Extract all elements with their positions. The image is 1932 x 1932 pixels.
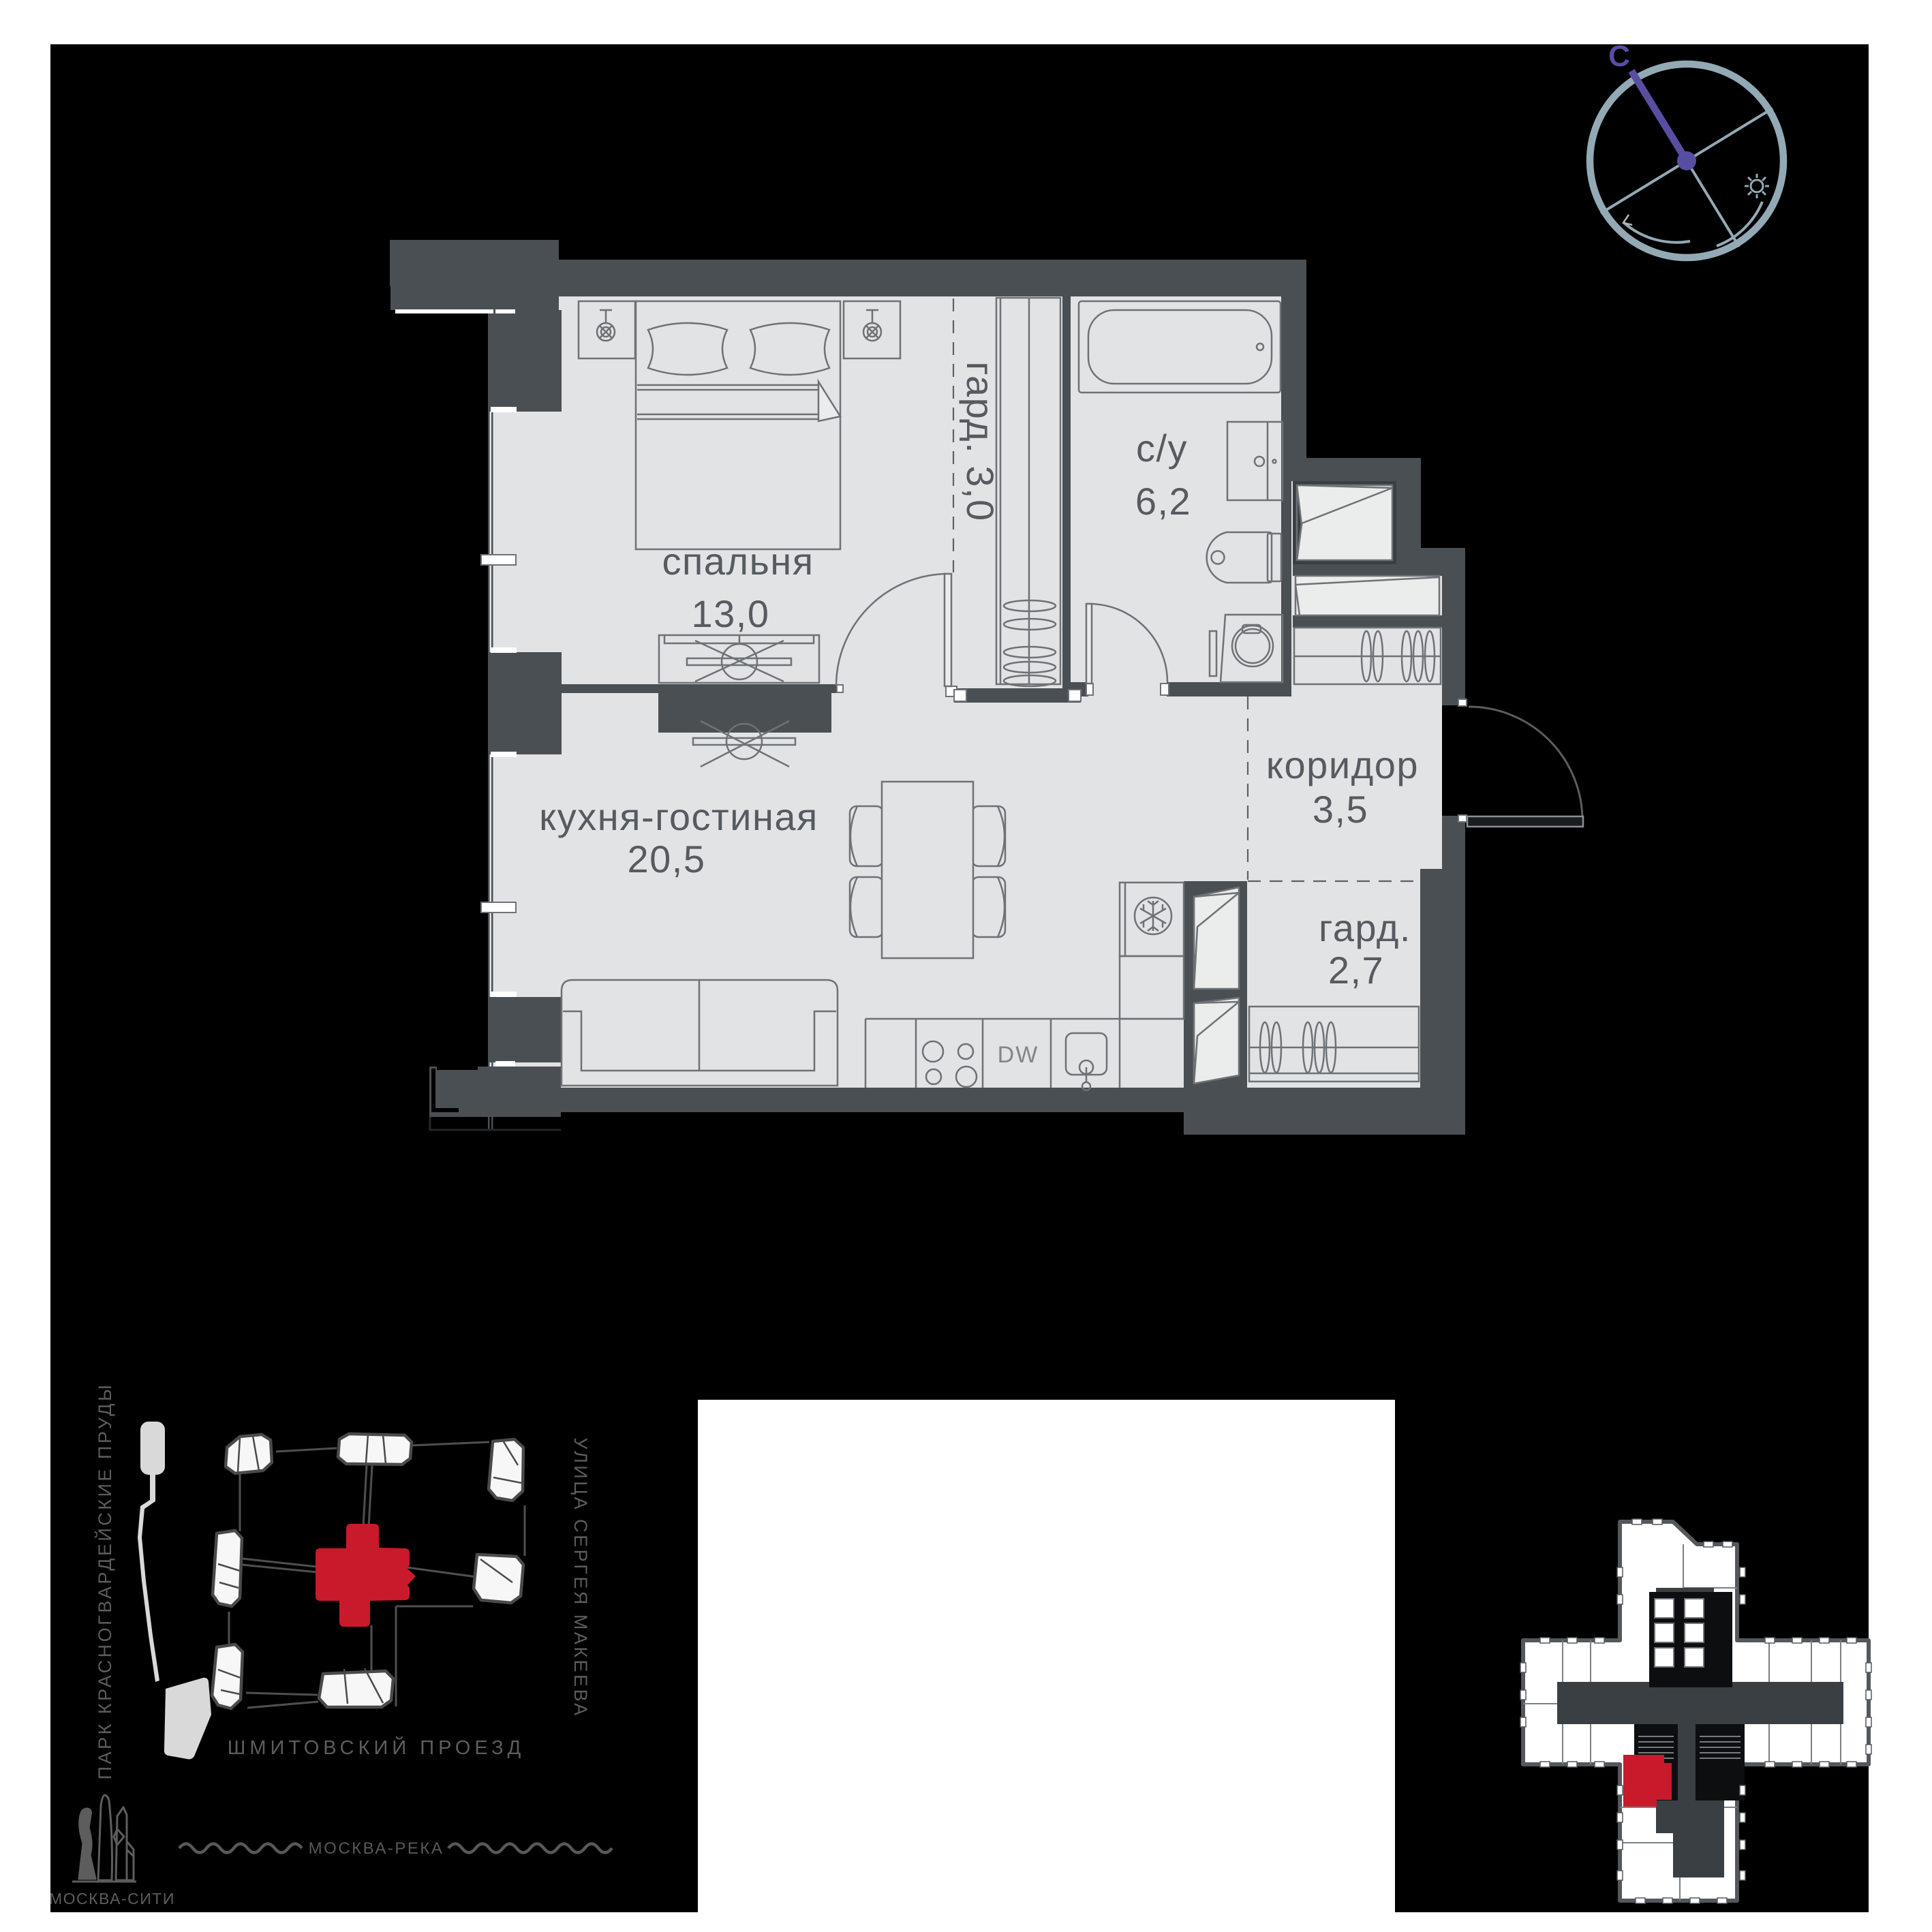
svg-text:МОСКВА-РЕКА: МОСКВА-РЕКА: [309, 1839, 444, 1858]
svg-text:гард. 3,0: гард. 3,0: [959, 361, 1002, 521]
svg-text:6,2: 6,2: [1135, 480, 1191, 523]
svg-text:МОСКВА-СИТИ: МОСКВА-СИТИ: [49, 1890, 175, 1907]
svg-text:ШМИТОВСКИЙ ПРОЕЗД: ШМИТОВСКИЙ ПРОЕЗД: [228, 1736, 525, 1759]
svg-text:спальня: спальня: [662, 540, 814, 583]
svg-text:гард.: гард.: [1319, 906, 1411, 949]
svg-text:с/у: с/у: [1136, 427, 1188, 470]
svg-text:2,7: 2,7: [1328, 949, 1384, 992]
svg-text:ПАРК КРАСНОГВАРДЕЙСКИЕ ПРУДЫ: ПАРК КРАСНОГВАРДЕЙСКИЕ ПРУДЫ: [94, 1383, 115, 1780]
svg-text:20,5: 20,5: [628, 838, 706, 880]
svg-text:3,5: 3,5: [1313, 788, 1368, 831]
svg-text:УЛИЦА СЕРГЕЯ МАКЕЕВА: УЛИЦА СЕРГЕЯ МАКЕЕВА: [570, 1437, 591, 1717]
svg-text:13,0: 13,0: [692, 592, 770, 635]
svg-text:кухня-гостиная: кухня-гостиная: [539, 795, 818, 838]
svg-text:С: С: [1608, 40, 1630, 73]
svg-text:коридор: коридор: [1266, 743, 1419, 786]
svg-text:DW: DW: [998, 1042, 1039, 1068]
